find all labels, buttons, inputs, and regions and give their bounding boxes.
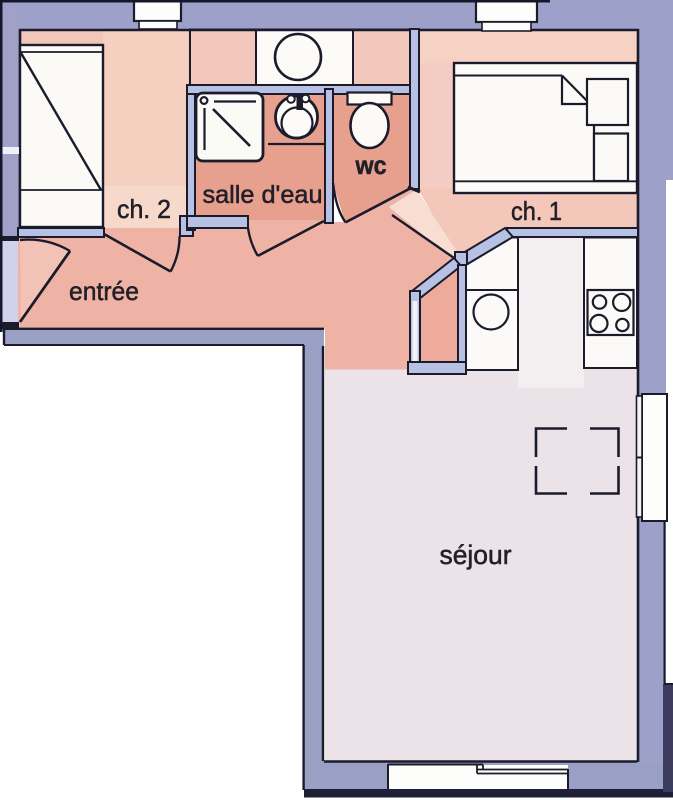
svg-text:wc: wc <box>355 150 387 180</box>
svg-text:entrée: entrée <box>69 276 139 306</box>
svg-text:séjour: séjour <box>440 540 512 570</box>
svg-text:ch. 1: ch. 1 <box>511 196 562 226</box>
svg-text:salle d'eau: salle d'eau <box>203 181 323 209</box>
svg-text:ch. 2: ch. 2 <box>117 194 171 224</box>
